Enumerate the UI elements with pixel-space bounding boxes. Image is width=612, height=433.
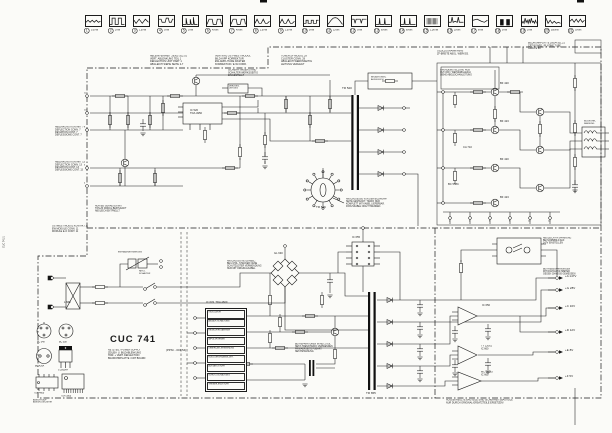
chassis-outline (38, 47, 601, 398)
isolation-barrier (181, 232, 187, 396)
component-stamps (51, 75, 578, 393)
registration-marks (260, 0, 584, 3)
rgb-preset-box (441, 67, 499, 89)
psu-ic-function-row: OSZILLATOR (207, 310, 244, 318)
mains-input (48, 276, 80, 309)
psu-ic-function-row: REGELVERSTAERKER (207, 328, 244, 336)
psu-ic-function-row: TREIBER-ENDSTUFE (207, 382, 244, 390)
bridge-rectifier (271, 259, 299, 287)
chassis-subtitle: NETZTEIL / POWER SUPPLY ZEILEN- U. BILDA… (108, 349, 145, 360)
psu-ic-function-row: IMPULSFORMER (207, 337, 244, 345)
ic-secondary-dip (346, 242, 380, 266)
flyback-transformer (351, 95, 359, 190)
schematic-drawing (0, 0, 612, 433)
degauss-posistor (126, 257, 149, 270)
schematic-page: 10,3Vss22Vss31,5Vss43Vss52Vss645Vss745Vs… (0, 0, 612, 433)
psu-ic-function-row: NULLDURCHGANGS-DET. (207, 355, 244, 363)
psu-ic-block: OSZILLATORANLAUF-SCHALTUNGREGELVERSTAERK… (205, 308, 247, 392)
optocoupler (497, 238, 541, 264)
eht-distributor (311, 178, 335, 202)
voltage-rails (548, 276, 563, 379)
chassis-title: CUC 741 (110, 334, 156, 345)
part-number: (PPNr - 001.54) (166, 349, 186, 352)
regulator-opamps (458, 307, 481, 390)
psu-ic-function-row: ANLAUF-SCHALTUNG (207, 319, 244, 327)
ic-deflection (178, 103, 222, 130)
wire-network (52, 47, 609, 425)
package-pinouts (36, 322, 84, 391)
delay-line-box (228, 84, 248, 93)
psu-ic-function-row: UEBERLAST-ERKENNUNG (207, 346, 244, 354)
focus-unit-box (368, 73, 412, 89)
driver-transformer (309, 360, 314, 376)
psu-ic-function-row: AUSTAST-STUFE (207, 364, 244, 372)
crt-socket (582, 127, 605, 157)
crt-top-connector (575, 40, 601, 53)
smps-transformer (368, 292, 376, 390)
psu-ic-function-row: SCHUTZ-SCHALTUNG (207, 373, 244, 381)
